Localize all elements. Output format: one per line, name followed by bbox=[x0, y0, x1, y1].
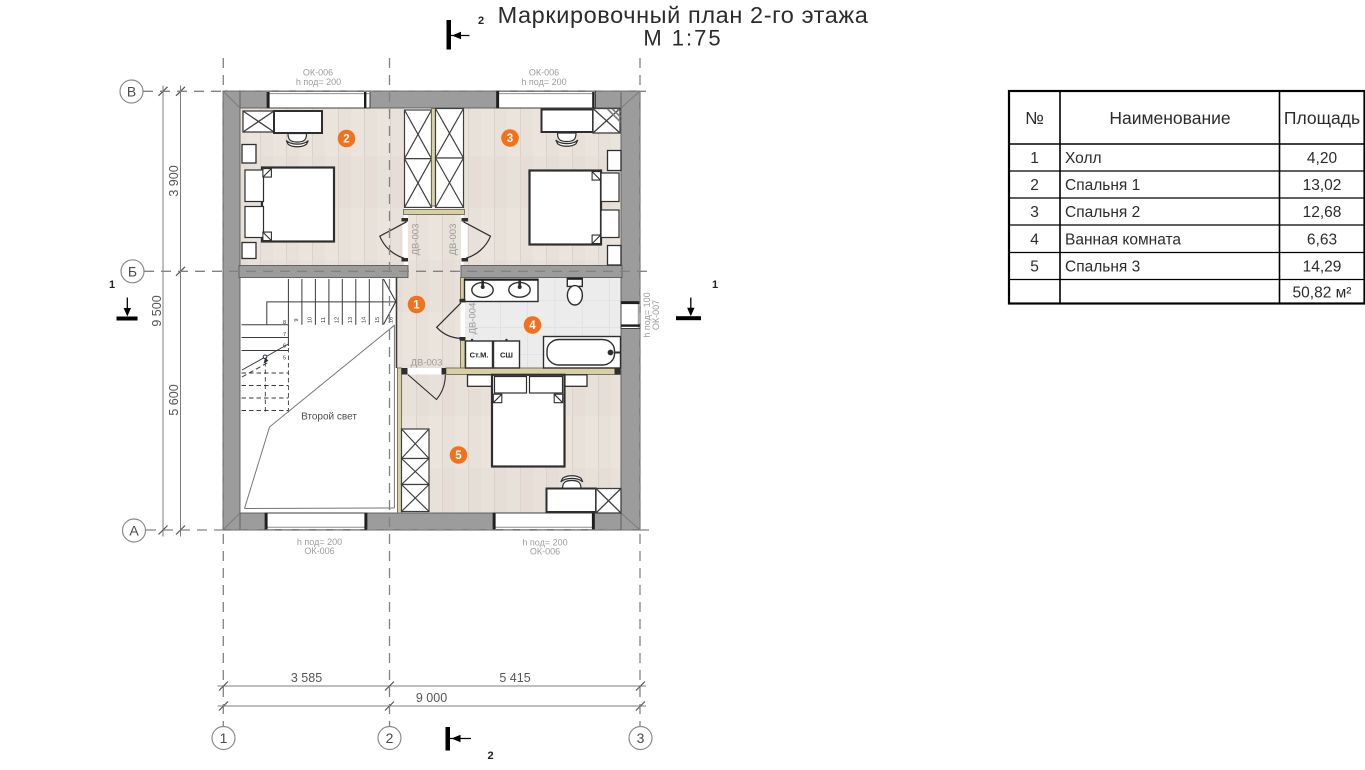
svg-text:№: № bbox=[1025, 108, 1044, 128]
svg-text:7: 7 bbox=[283, 332, 286, 338]
svg-text:1: 1 bbox=[220, 730, 228, 746]
svg-text:ДВ-003: ДВ-003 bbox=[411, 358, 443, 369]
svg-text:ДВ-004: ДВ-004 bbox=[468, 303, 479, 335]
svg-text:1: 1 bbox=[413, 300, 420, 312]
svg-text:1: 1 bbox=[712, 279, 718, 291]
svg-text:Второй свет: Второй свет bbox=[301, 412, 357, 423]
svg-text:1: 1 bbox=[1030, 150, 1039, 167]
svg-text:6: 6 bbox=[283, 344, 286, 350]
svg-text:4: 4 bbox=[1030, 232, 1039, 249]
svg-text:3 900: 3 900 bbox=[167, 165, 181, 196]
svg-text:ОК-006: ОК-006 bbox=[303, 68, 333, 78]
svg-text:50,82 м²: 50,82 м² bbox=[1293, 285, 1352, 302]
svg-text:5 600: 5 600 bbox=[167, 384, 181, 415]
svg-text:13: 13 bbox=[348, 317, 354, 323]
svg-text:М 1:75: М 1:75 bbox=[643, 26, 722, 51]
svg-text:9 000: 9 000 bbox=[416, 691, 447, 705]
svg-text:5: 5 bbox=[1030, 259, 1039, 276]
svg-text:10: 10 bbox=[307, 317, 313, 323]
svg-text:6,63: 6,63 bbox=[1307, 232, 1337, 249]
svg-text:Ст.М.: Ст.М. bbox=[470, 351, 489, 360]
svg-text:9: 9 bbox=[294, 318, 300, 321]
svg-text:2: 2 bbox=[343, 134, 349, 146]
svg-text:2: 2 bbox=[386, 730, 394, 746]
svg-text:ОК-007: ОК-007 bbox=[651, 300, 661, 330]
svg-text:12,68: 12,68 bbox=[1303, 204, 1342, 221]
svg-text:Холл: Холл bbox=[1065, 150, 1102, 167]
svg-text:14: 14 bbox=[361, 317, 367, 323]
svg-text:3: 3 bbox=[1030, 204, 1039, 221]
svg-text:Наименование: Наименование bbox=[1109, 108, 1230, 128]
svg-text:4,20: 4,20 bbox=[1307, 150, 1338, 167]
svg-text:3: 3 bbox=[637, 730, 645, 746]
svg-text:Спальня 1: Спальня 1 bbox=[1065, 177, 1140, 194]
svg-text:ДВ-003: ДВ-003 bbox=[411, 224, 422, 256]
svg-text:13,02: 13,02 bbox=[1303, 177, 1342, 194]
svg-text:ОК-006: ОК-006 bbox=[529, 68, 559, 78]
svg-text:5 415: 5 415 bbox=[499, 671, 530, 685]
svg-text:12: 12 bbox=[334, 317, 340, 323]
svg-text:ДВ-003: ДВ-003 bbox=[448, 224, 459, 256]
svg-text:5: 5 bbox=[455, 450, 462, 462]
svg-text:ОК-006: ОК-006 bbox=[530, 547, 560, 557]
svg-text:11: 11 bbox=[321, 317, 327, 323]
svg-text:СШ: СШ bbox=[500, 351, 513, 360]
svg-text:2: 2 bbox=[1030, 177, 1039, 194]
svg-text:ОК-006: ОК-006 bbox=[304, 546, 334, 556]
svg-text:А: А bbox=[129, 523, 139, 539]
svg-text:Спальня 2: Спальня 2 bbox=[1065, 204, 1140, 221]
svg-text:Маркировочный план 2-го этажа: Маркировочный план 2-го этажа bbox=[498, 2, 869, 28]
svg-text:5: 5 bbox=[283, 356, 286, 362]
svg-text:9 500: 9 500 bbox=[150, 295, 164, 326]
svg-text:h под= 200: h под= 200 bbox=[521, 77, 566, 87]
svg-text:Площадь: Площадь bbox=[1284, 108, 1360, 128]
svg-text:3: 3 bbox=[507, 133, 513, 145]
svg-text:2: 2 bbox=[478, 15, 484, 27]
svg-text:3 585: 3 585 bbox=[291, 671, 322, 685]
svg-text:14,29: 14,29 bbox=[1303, 259, 1342, 276]
svg-text:15: 15 bbox=[375, 317, 381, 323]
svg-text:8: 8 bbox=[283, 320, 286, 326]
svg-text:Ванная комната: Ванная комната bbox=[1065, 232, 1181, 249]
svg-text:h под= 200: h под= 200 bbox=[296, 77, 341, 87]
svg-text:2: 2 bbox=[488, 750, 494, 762]
svg-text:В: В bbox=[127, 84, 136, 100]
svg-text:4: 4 bbox=[529, 320, 536, 332]
svg-text:1: 1 bbox=[109, 279, 115, 291]
svg-text:Спальня 3: Спальня 3 bbox=[1065, 259, 1140, 276]
svg-text:Б: Б bbox=[128, 263, 137, 279]
